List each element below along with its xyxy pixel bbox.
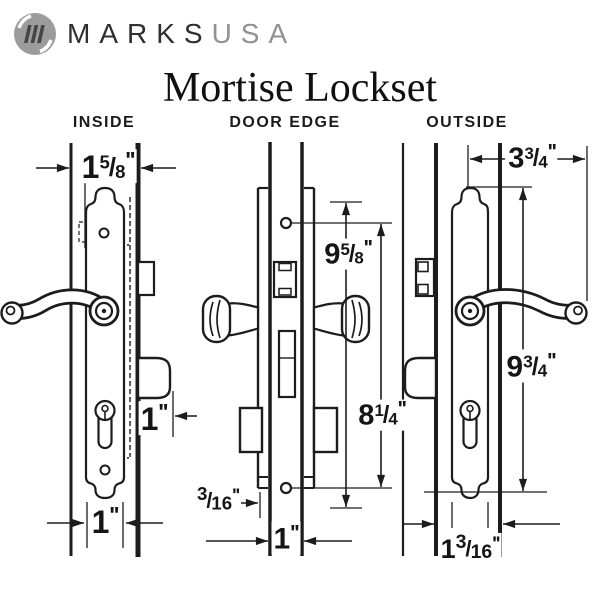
edge-hub-block-right	[314, 408, 337, 452]
outside-escutcheon-plate	[452, 188, 488, 498]
outside-lever-handle	[456, 296, 587, 325]
edge-screw-hole-bottom	[281, 483, 291, 493]
dimension-edge-faceplate-inset: 3/16''	[195, 485, 241, 514]
dimension-edge-faceplate-length: 95/8''	[322, 239, 373, 270]
outside-latch-bolt	[416, 259, 434, 296]
dim-fraction-denominator: 4	[538, 361, 548, 381]
edge-deadbolt-opening	[279, 331, 295, 397]
inside-view-drawing	[2, 143, 198, 557]
dim-whole: 1	[441, 534, 456, 564]
spec-sheet-page: MARKSUSA Mortise Lockset INSIDE DOOR EDG…	[0, 0, 600, 600]
dim-unit-mark: ''	[547, 347, 555, 372]
dim-unit-mark: ''	[548, 141, 556, 164]
edge-latch-opening	[274, 262, 296, 297]
dim-whole: 9	[506, 351, 523, 384]
dim-fraction-denominator: 16	[211, 492, 232, 513]
edge-screw-hole-top	[281, 218, 291, 228]
dimension-inside-trim-width: 1/''	[90, 504, 121, 538]
outside-euro-cylinder	[461, 401, 480, 448]
edge-handle-right	[314, 296, 369, 342]
outside-deadbolt	[405, 358, 436, 398]
dimension-edge-faceplate-width: 1/''	[272, 521, 301, 554]
edge-hub-block-left	[240, 408, 262, 452]
inside-plate-screw-hole-top	[100, 229, 109, 238]
edge-handle-left	[203, 296, 258, 342]
dim-unit-mark: ''	[290, 519, 298, 544]
dim-whole: 8	[358, 399, 374, 431]
dim-whole: 3	[508, 142, 524, 174]
dim-whole: 1	[92, 504, 110, 540]
dimension-inside-door-thickness: 15/8''	[80, 149, 137, 183]
outside-view-drawing	[403, 143, 587, 557]
dim-unit-mark: ''	[158, 399, 167, 425]
outside-thickness-dimension	[404, 502, 560, 528]
inside-lever-handle	[2, 297, 119, 326]
dim-unit-mark: ''	[125, 147, 134, 173]
dim-unit-mark: ''	[398, 398, 406, 421]
dim-unit-mark: ''	[492, 533, 499, 555]
dimension-inside-bolt-projection: 1/''	[139, 401, 170, 435]
dimension-outside-handle-reach: 33/4''	[506, 143, 557, 174]
inside-euro-cylinder	[96, 401, 115, 448]
dim-unit-mark: ''	[232, 485, 239, 506]
dim-whole: 1	[141, 401, 159, 437]
dim-whole: 1	[82, 149, 100, 185]
dim-whole: 1	[274, 523, 291, 556]
inside-deadbolt	[138, 358, 170, 398]
dimension-outside-door-thickness: 13/16''	[439, 533, 502, 563]
dim-unit-mark: ''	[364, 237, 372, 260]
inside-plate-screw-hole-bottom	[101, 466, 110, 475]
dim-whole: 9	[324, 238, 340, 270]
dim-fraction-denominator: 16	[471, 541, 493, 563]
dim-unit-mark: ''	[109, 502, 118, 528]
dim-fraction-denominator: 8	[115, 161, 125, 182]
dimension-edge-hole-spacing: 81/4''	[356, 400, 407, 431]
inside-latch-bolt	[138, 262, 154, 295]
dimension-outside-trim-length: 93/4''	[504, 349, 557, 382]
